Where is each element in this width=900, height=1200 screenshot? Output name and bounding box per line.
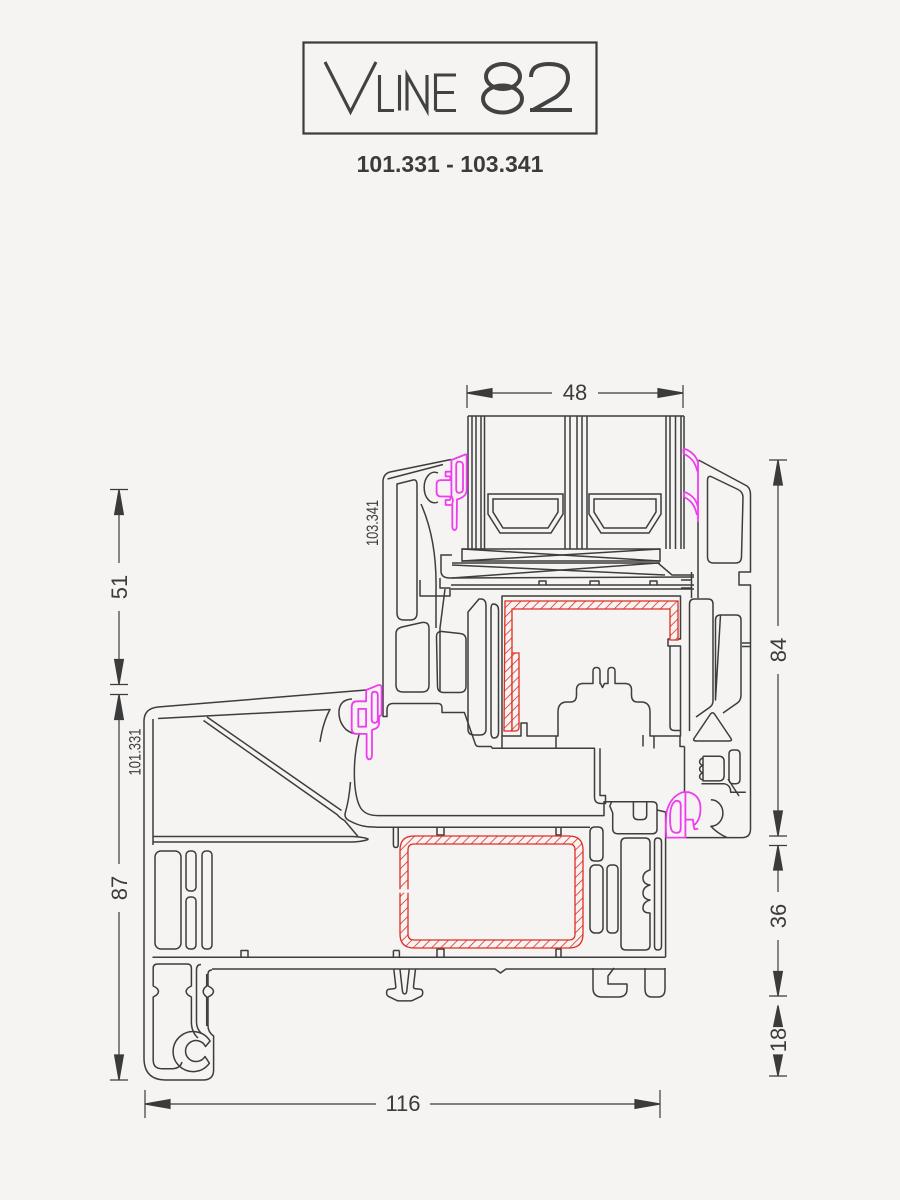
svg-text:18: 18 (766, 1028, 791, 1052)
svg-text:116: 116 (385, 1091, 420, 1116)
svg-text:87: 87 (107, 876, 132, 900)
svg-text:101.331 - 103.341: 101.331 - 103.341 (357, 151, 544, 177)
svg-text:48: 48 (563, 380, 587, 405)
svg-text:101.331: 101.331 (127, 729, 145, 776)
svg-text:103.341: 103.341 (364, 500, 382, 546)
svg-text:36: 36 (766, 904, 791, 928)
svg-text:84: 84 (766, 638, 791, 662)
svg-text:51: 51 (107, 575, 132, 599)
